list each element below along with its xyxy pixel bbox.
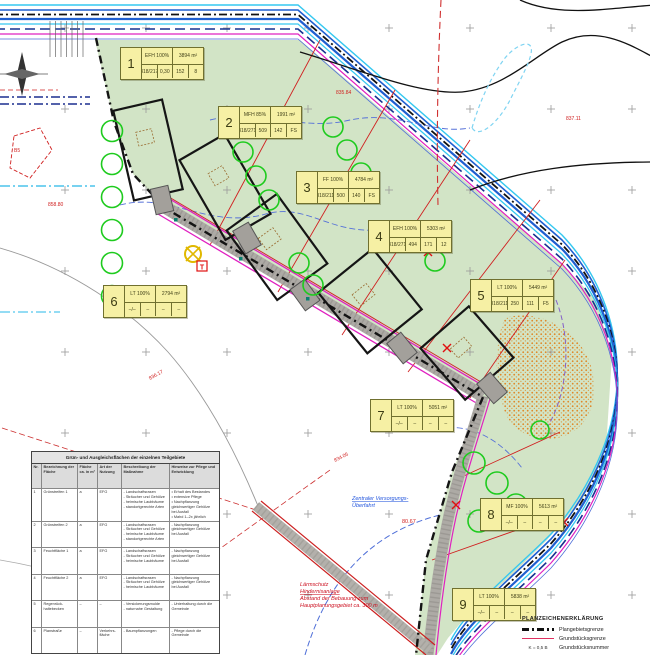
table-cell: Feuchtfläche 1: [42, 548, 78, 574]
parcel-value-cell: –: [439, 417, 454, 430]
site-plan-canvas: T 858.80 835.84 837.11 836.17 834.05 B5 …: [0, 0, 650, 655]
parcel-area: 3894 m²: [173, 48, 203, 64]
parcel-use: EFH 100%: [142, 48, 173, 64]
parcel-value-cell: 111: [523, 297, 539, 310]
parcel-value-cell: 140: [349, 189, 365, 202]
parcel-value-cell: –: [423, 417, 439, 430]
parcel-label-box: 2MFH 85%1991 m²318/271509142FS: [218, 106, 302, 139]
parcel-value-cell: –/–: [502, 516, 518, 529]
plot-number-symbol: K = 0,5 B: [522, 645, 554, 650]
parcel-label-box: 3FF 100%4784 m²318/211500140FS: [296, 171, 380, 204]
table-cell: Verkehrs- fläche: [98, 628, 122, 654]
parcel-label-box: 6LT 100%2794 m²–/––––: [103, 285, 187, 318]
parcel-value-cell: 12: [437, 238, 452, 251]
parcel-number: 4: [369, 221, 390, 252]
parcel-value-cell: 509: [256, 124, 272, 137]
parcel-value-cell: 250: [508, 297, 524, 310]
parcel-number: 9: [453, 589, 474, 620]
table-cell: Planstraße: [42, 628, 78, 654]
svg-text:834.05: 834.05: [333, 451, 350, 463]
parcel-value-cell: 318/271: [390, 238, 406, 251]
parcel-area: 5303 m²: [421, 221, 451, 237]
parcel-value-cell: 494: [406, 238, 422, 251]
table-cell: - Landschaftsrasen - Sträucher und Gehöl…: [122, 575, 170, 601]
table-cell: - Nachpflanzung gleichwertiger Gehölze b…: [170, 548, 217, 574]
table-cell: –: [98, 601, 122, 627]
parcel-value-cell: 318/211: [318, 189, 334, 202]
parcel-value-cell: –: [505, 606, 521, 619]
parcel-area: 5838 m²: [505, 589, 535, 605]
parcel-value-cell: –: [549, 516, 564, 529]
parcel-number: 5: [471, 280, 492, 311]
parcel-label-box: 5LT 100%5449 m²318/211250111F5: [470, 279, 554, 312]
parcel-number: 6: [104, 286, 125, 317]
svg-text:858.80: 858.80: [48, 202, 64, 208]
parcel-value-cell: –: [518, 516, 534, 529]
parcel-value-cell: 500: [334, 189, 350, 202]
table-cell: - Landschaftsrasen - Sträucher und Gehöl…: [122, 489, 170, 521]
parcel-number: 8: [481, 499, 502, 530]
parcel-area: 2794 m²: [156, 286, 186, 302]
table-cell: 4: [32, 575, 42, 601]
table-row: 4Feuchtfläche 2aEFG- Landschaftsrasen - …: [32, 575, 219, 602]
plot-line-symbol: [522, 638, 554, 640]
table-cell: a: [78, 548, 98, 574]
transformer-icon: T: [197, 261, 207, 272]
table-cell: a: [78, 575, 98, 601]
parcel-value-cell: –: [141, 303, 157, 316]
table-cell: 1: [32, 489, 42, 521]
table-cell: - Pflege durch die Gemeinde: [170, 628, 217, 654]
parcel-value-cell: –: [156, 303, 172, 316]
parcel-value-cell: –/–: [474, 606, 490, 619]
svg-text:835.84: 835.84: [336, 90, 352, 96]
parcel-number: 1: [121, 48, 142, 79]
parcel-value-cell: 318/217: [142, 65, 158, 78]
table-cell: - Unterhaltung durch die Gemeinde: [170, 601, 217, 627]
parcel-use: MFH 85%: [240, 107, 271, 123]
parcel-use: LT 100%: [392, 400, 423, 416]
table-cell: - Landschaftsrasen - Sträucher und Gehöl…: [122, 548, 170, 574]
table-cell: EFG: [98, 548, 122, 574]
table-cell: • Erhalt des Bestandes • extensive Pfleg…: [170, 489, 217, 521]
svg-text:T: T: [200, 265, 205, 272]
red-note-line1: Lärmschutz: [300, 582, 329, 588]
parcel-use: MF 100%: [502, 499, 533, 515]
table-row: 6Planstraße–Verkehrs- fläche- Baumpflanz…: [32, 628, 219, 654]
legend-heading: PLANZEICHENERKLÄRUNG: [522, 616, 648, 622]
table-row: 5Regenrück- haltebecken––- Versickerungs…: [32, 601, 219, 628]
table-cell: Feuchtfläche 2: [42, 575, 78, 601]
parcel-value-cell: 152: [173, 65, 189, 78]
elevation-label: 80.67: [402, 519, 416, 525]
parcel-number: 7: [371, 400, 392, 431]
legend-item: Grundstücksgrenze: [522, 634, 648, 643]
parcel-value-cell: 8: [189, 65, 204, 78]
table-cell: EFG: [98, 489, 122, 521]
parcel-area: 5613 m²: [533, 499, 563, 515]
parcel-number: 2: [219, 107, 240, 138]
table-cell: - Baumpflanzungen: [122, 628, 170, 654]
parcel-area: 5449 m²: [523, 280, 553, 296]
table-cell: Regenrück- haltebecken: [42, 601, 78, 627]
parcel-value-cell: –: [172, 303, 187, 316]
table-header-cell: Beschreibung der Maßnahme: [122, 464, 170, 488]
parcel-number: 3: [297, 172, 318, 203]
table-row: 3Feuchtfläche 1aEFG- Landschaftsrasen - …: [32, 548, 219, 575]
parcel-value-cell: 318/211: [492, 297, 508, 310]
table-cell: 3: [32, 548, 42, 574]
street-lamp-icon: [185, 246, 201, 262]
legend-item: Plangebietsgrenze: [522, 625, 648, 634]
table-cell: a: [78, 522, 98, 548]
parcel-use: EFH 100%: [390, 221, 421, 237]
table-cell: - Versickerungsmulde - naturnahe Gestalt…: [122, 601, 170, 627]
red-note-line4: Hauptplanungsgebiet ca. 300 m: [300, 603, 378, 609]
table-title: Grün- und Ausgleichsflächen der einzelne…: [32, 452, 219, 464]
table-cell: EFG: [98, 575, 122, 601]
legend-item: K = 0,5 B Grundstücksnummer: [522, 643, 648, 652]
table-cell: - Nachpflanzung gleichwertiger Gehölze b…: [170, 575, 217, 601]
parcel-area: 5051 m²: [423, 400, 453, 416]
parcel-use: LT 100%: [125, 286, 156, 302]
table-row: 2Grünstreifen 2aEFG- Landschaftsrasen - …: [32, 522, 219, 549]
parcel-value-cell: –/–: [125, 303, 141, 316]
parcel-label-box: 8MF 100%5613 m²–/––––: [480, 498, 564, 531]
table-body: 1Grünstreifen 1aEFG- Landschaftsrasen - …: [32, 489, 219, 653]
parcel-value-cell: F5: [539, 297, 554, 310]
table-header-cell: Fläche ca. in m²: [78, 464, 98, 488]
green-areas-table: Grün- und Ausgleichsflächen der einzelne…: [31, 451, 220, 654]
table-row: 1Grünstreifen 1aEFG- Landschaftsrasen - …: [32, 489, 219, 522]
table-cell: 6: [32, 628, 42, 654]
parcel-area: 1991 m²: [271, 107, 301, 123]
table-header-cell: Bezeichnung der Fläche: [42, 464, 78, 488]
parcel-value-cell: 318/271: [240, 124, 256, 137]
parcel-value-cell: –: [408, 417, 424, 430]
parcel-value-cell: –: [533, 516, 549, 529]
table-header-cell: Hinweise zur Pflege und Entwicklung: [170, 464, 217, 488]
table-cell: –: [78, 601, 98, 627]
parcel-label-box: 4EFH 100%5303 m²318/27149417112: [368, 220, 452, 253]
table-header-cell: Nr.: [32, 464, 42, 488]
table-cell: Grünstreifen 2: [42, 522, 78, 548]
table-cell: - Landschaftsrasen - Sträucher und Gehöl…: [122, 522, 170, 548]
parcel-value-cell: 171: [421, 238, 437, 251]
parcel-use: LT 100%: [492, 280, 523, 296]
parcel-label-box: 7LT 100%5051 m²–/––––: [370, 399, 454, 432]
parcel-value-cell: 0,30: [158, 65, 174, 78]
table-cell: a: [78, 489, 98, 521]
parcel-label-box: 1EFH 100%3894 m²318/2170,301528: [120, 47, 204, 80]
parcel-area: 4784 m²: [349, 172, 379, 188]
svg-text:836.17: 836.17: [148, 369, 164, 382]
parcel-value-cell: 142: [271, 124, 287, 137]
table-cell: - Nachpflanzung gleichwertiger Gehölze b…: [170, 522, 217, 548]
table-cell: 5: [32, 601, 42, 627]
table-cell: Grünstreifen 1: [42, 489, 78, 521]
legend: PLANZEICHENERKLÄRUNG Plangebietsgrenze G…: [522, 616, 648, 652]
blue-annotation-line1: Zentraler Versorgungs-: [351, 496, 409, 502]
table-cell: 2: [32, 522, 42, 548]
compass-icon: [0, 52, 48, 96]
table-cell: EFG: [98, 522, 122, 548]
table-cell: –: [78, 628, 98, 654]
blue-annotation-line2: Überfahrt: [352, 502, 375, 509]
parcel-value-cell: FS: [365, 189, 380, 202]
table-header-row: Nr. Bezeichnung der Fläche Fläche ca. in…: [32, 464, 219, 489]
red-note-line3: Abstand der Bebauung zum: [299, 596, 369, 602]
svg-text:B5: B5: [14, 148, 20, 154]
table-header-cell: Art der Nutzung: [98, 464, 122, 488]
parcel-value-cell: FS: [287, 124, 302, 137]
svg-text:837.11: 837.11: [566, 116, 581, 122]
parcel-value-cell: –/–: [392, 417, 408, 430]
parcel-use: LT 100%: [474, 589, 505, 605]
parcel-use: FF 100%: [318, 172, 349, 188]
boundary-line-symbol: [522, 628, 554, 631]
parcel-value-cell: –: [490, 606, 506, 619]
red-note-line2: Hindernisanlage: [300, 589, 340, 595]
